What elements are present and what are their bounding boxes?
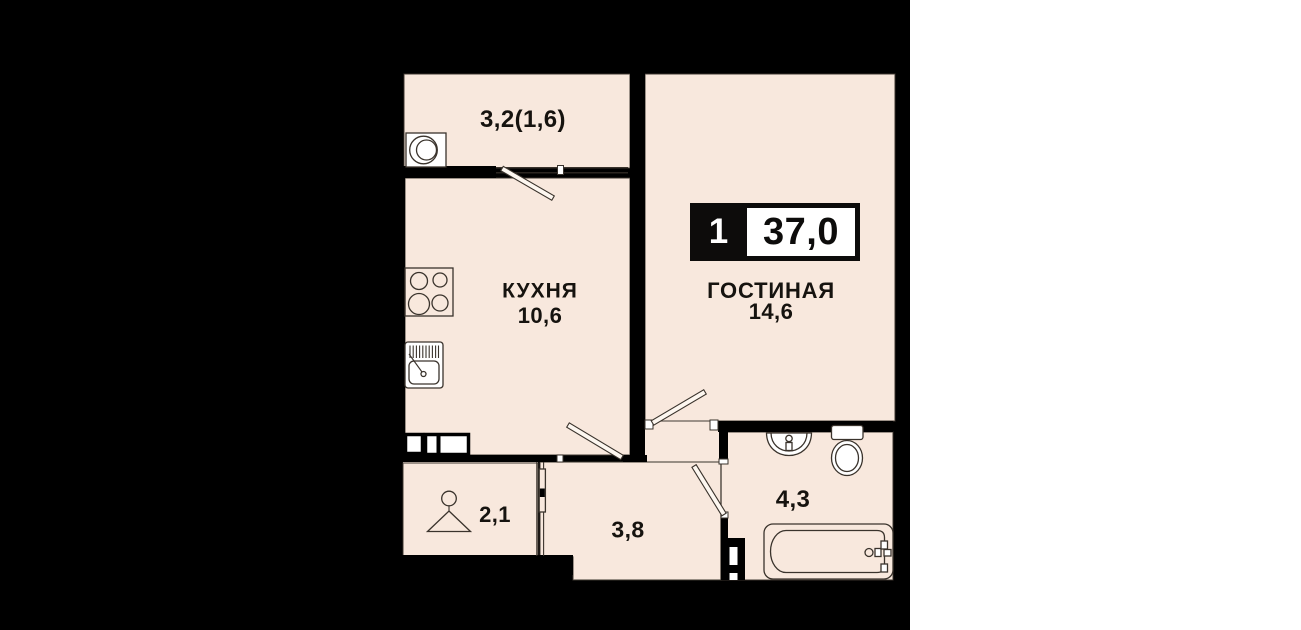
vent-shaft-bathroom: [728, 538, 745, 580]
balcony-door-leaf: [501, 166, 555, 200]
kitchen-door-leaf: [567, 423, 624, 460]
washbasin-icon: [767, 433, 812, 456]
walls-layer: [394, 58, 893, 580]
toilet-icon: [832, 426, 864, 476]
hall-area-label: 2,1: [479, 504, 511, 526]
stove-icon: [405, 268, 453, 316]
bathroom-area-label: 4,3: [776, 488, 811, 512]
rooms-count: 1: [690, 203, 747, 261]
kitchen-sink-icon: [405, 342, 443, 388]
kitchen-area-label: 10,6: [518, 305, 562, 327]
summary-badge: 1 37,0: [690, 203, 860, 261]
balcony-area-label: 3,2(1,6): [480, 108, 566, 132]
ac-unit-icon: [406, 133, 446, 167]
hanger-icon: [428, 491, 471, 531]
floorplan-canvas: 3,2(1,6) КУХНЯ 10,6 ГОСТИНАЯ 14,6 2,1 3,…: [0, 0, 1301, 630]
room-outlines: [403, 74, 895, 580]
living-door-leaf: [651, 390, 706, 425]
total-area-box: 37,0: [747, 208, 855, 256]
total-area: 37,0: [763, 211, 839, 254]
corridor-area-label: 3,8: [611, 519, 644, 542]
vent-shaft-kitchen: [406, 433, 469, 456]
kitchen-name-label: КУХНЯ: [502, 281, 578, 302]
living-area-label: 14,6: [749, 301, 793, 323]
bathtub-icon: [764, 524, 893, 579]
